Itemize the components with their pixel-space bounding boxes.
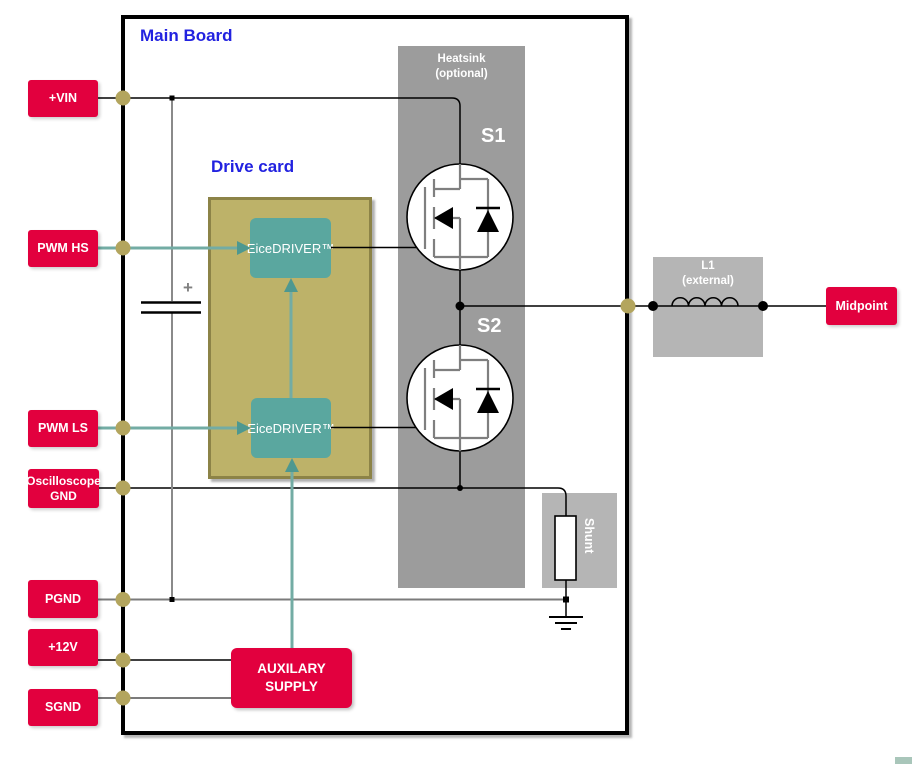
terminal-oscilloscope-gnd: Oscilloscope GND: [28, 469, 99, 508]
circuit-diagram-page: { "colors": { "red": "#E2003E", "blue": …: [0, 0, 912, 764]
auxiliary-supply-line1: AUXILARY: [257, 660, 326, 678]
terminal-pwm-hs: PWM HS: [28, 230, 98, 267]
inductor-label-line2: (external): [682, 275, 734, 287]
terminal-pwm-ls: PWM LS: [28, 410, 98, 447]
capacitor-polarity-label: +: [183, 278, 193, 298]
gate-driver-hs: EiceDRIVER™: [250, 218, 331, 278]
terminal-12v: +12V: [28, 629, 98, 666]
drive-card-title: Drive card: [211, 157, 294, 177]
auxiliary-supply-block: AUXILARY SUPPLY: [231, 648, 352, 708]
heatsink-label-line1: Heatsink: [438, 53, 486, 65]
terminal-pgnd: PGND: [28, 580, 98, 618]
shunt-block: [542, 493, 617, 588]
terminal-midpoint: Midpoint: [826, 287, 897, 325]
heatsink-block: [398, 46, 525, 588]
shunt-label: Shunt: [582, 518, 596, 582]
heatsink-label: Heatsink (optional): [398, 52, 525, 82]
inductor-label-line1: L1: [701, 260, 714, 272]
main-board-outline: [121, 15, 629, 735]
inductor-label: L1 (external): [653, 259, 763, 289]
terminal-vin: +VIN: [28, 80, 98, 117]
auxiliary-supply-line2: SUPPLY: [265, 678, 318, 696]
switch-s1-label: S1: [481, 125, 505, 148]
heatsink-label-line2: (optional): [435, 68, 487, 80]
corner-fragment: [895, 757, 912, 764]
terminal-oscilloscope-gnd-line2: GND: [50, 489, 77, 503]
terminal-oscilloscope-gnd-line1: Oscilloscope: [26, 474, 101, 488]
switch-s2-label: S2: [477, 315, 501, 338]
gate-driver-ls: EiceDRIVER™: [251, 398, 331, 458]
terminal-sgnd: SGND: [28, 689, 98, 726]
main-board-title: Main Board: [140, 26, 233, 46]
